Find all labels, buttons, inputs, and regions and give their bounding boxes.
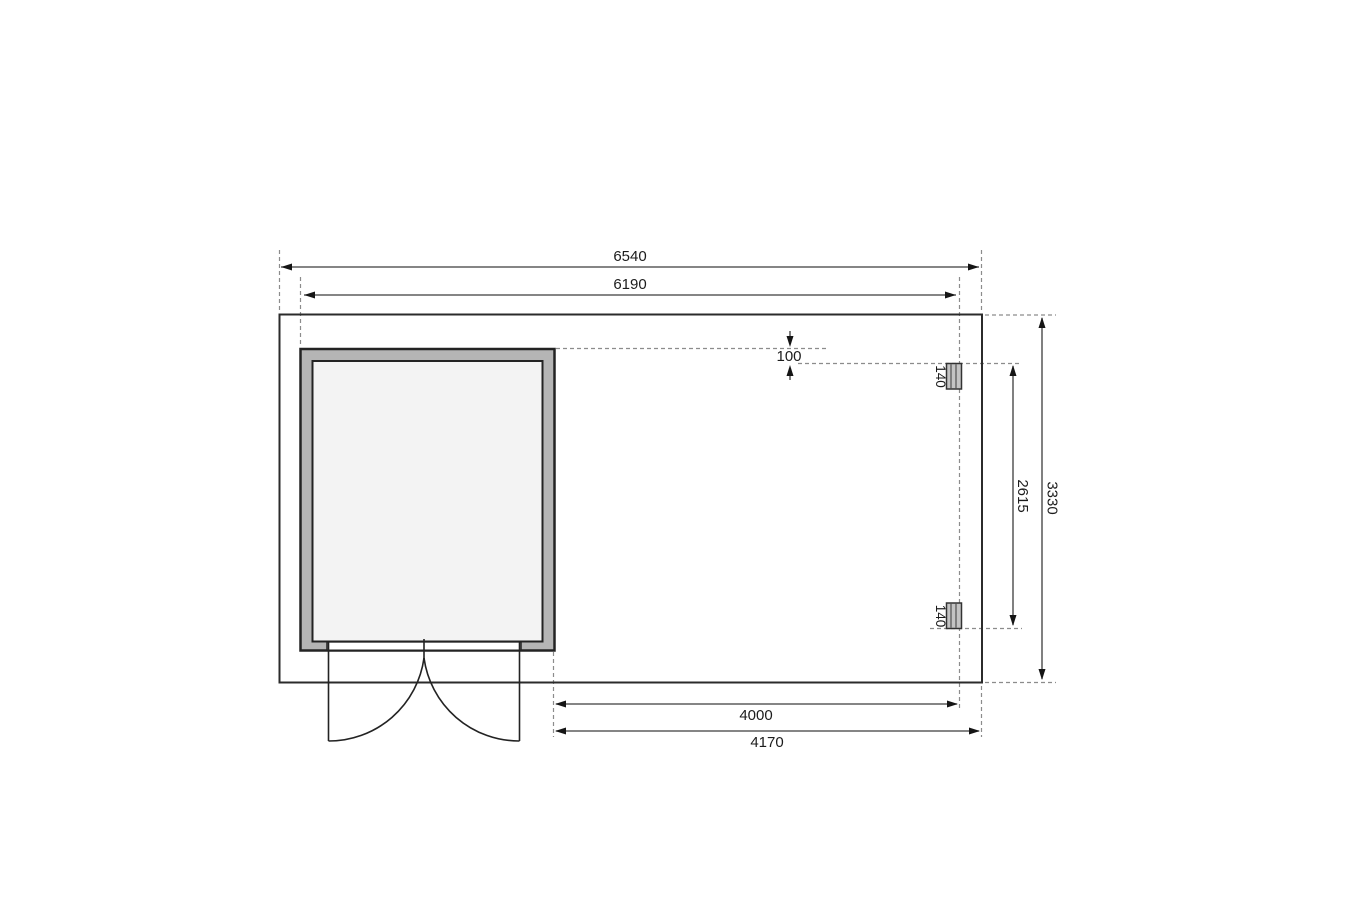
cabin-interior [313,361,543,642]
dim-bottom-inner-label: 4000 [739,707,772,724]
door-swing-arc-left [329,658,425,741]
arrow-up-icon [1010,365,1017,376]
floor-plan-drawing: 6540 6190 3330 2615 1 [0,0,1360,907]
arrow-down-icon [1010,615,1017,626]
arrow-right-icon [947,701,958,708]
cabin-room [301,349,555,651]
dim-offset-label: 100 [776,348,801,365]
dim-bottom-outer: 4170 [555,728,980,752]
arrow-left-icon [281,264,292,271]
dim-top-outer-label: 6540 [613,248,646,265]
arrow-left-icon [555,701,566,708]
arrow-down-icon [787,336,794,347]
arrow-up-icon [787,365,794,376]
dim-top-inner-label: 6190 [613,276,646,293]
dim-offset: 100 [776,331,801,380]
arrow-right-icon [968,264,979,271]
post-upper-label: 140 [933,365,948,388]
dim-top-inner: 6190 [304,276,956,299]
double-door [329,639,520,741]
post-lower-label: 140 [933,605,948,628]
arrow-up-icon [1039,317,1046,328]
arrow-right-icon [945,292,956,299]
arrow-down-icon [1039,669,1046,680]
arrow-left-icon [555,728,566,735]
door-swing-arc-right [424,658,520,741]
dim-right-outer: 3330 [1039,317,1061,680]
dim-right-inner-label: 2615 [1014,479,1031,512]
dim-bottom-inner: 4000 [555,701,958,725]
dim-right-inner: 2615 [1010,365,1032,626]
arrow-left-icon [304,292,315,299]
dim-bottom-outer-label: 4170 [750,734,783,751]
technical-drawing-page: 6540 6190 3330 2615 1 [0,0,1360,907]
arrow-right-icon [969,728,980,735]
dim-top-outer: 6540 [281,248,979,271]
dim-right-outer-label: 3330 [1044,481,1061,514]
